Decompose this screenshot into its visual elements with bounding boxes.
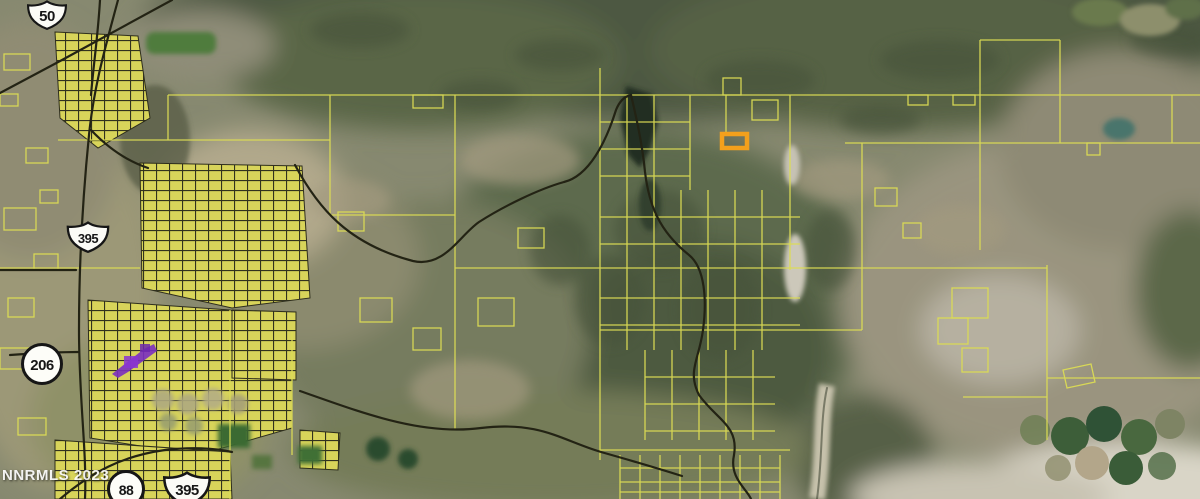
highway-shield-us-395-south: 395 [160, 471, 214, 499]
shield-label: 395 [78, 232, 98, 245]
map-viewport[interactable]: 50 395 206 88 395 NNRMLS 2023 [0, 0, 1200, 499]
pond [1103, 118, 1135, 140]
shield-label: 88 [119, 483, 134, 497]
shield-label: 395 [175, 483, 199, 498]
highway-shield-us-50: 50 [24, 0, 70, 30]
mls-watermark: NNRMLS 2023 [2, 467, 109, 484]
satellite-map[interactable] [0, 0, 1200, 499]
shield-label: 206 [30, 358, 54, 373]
highway-shield-us-395-north: 395 [64, 221, 112, 253]
selected-parcel[interactable] [722, 134, 747, 148]
highway-shield-sr-206: 206 [21, 343, 63, 385]
shield-label: 50 [39, 9, 55, 24]
